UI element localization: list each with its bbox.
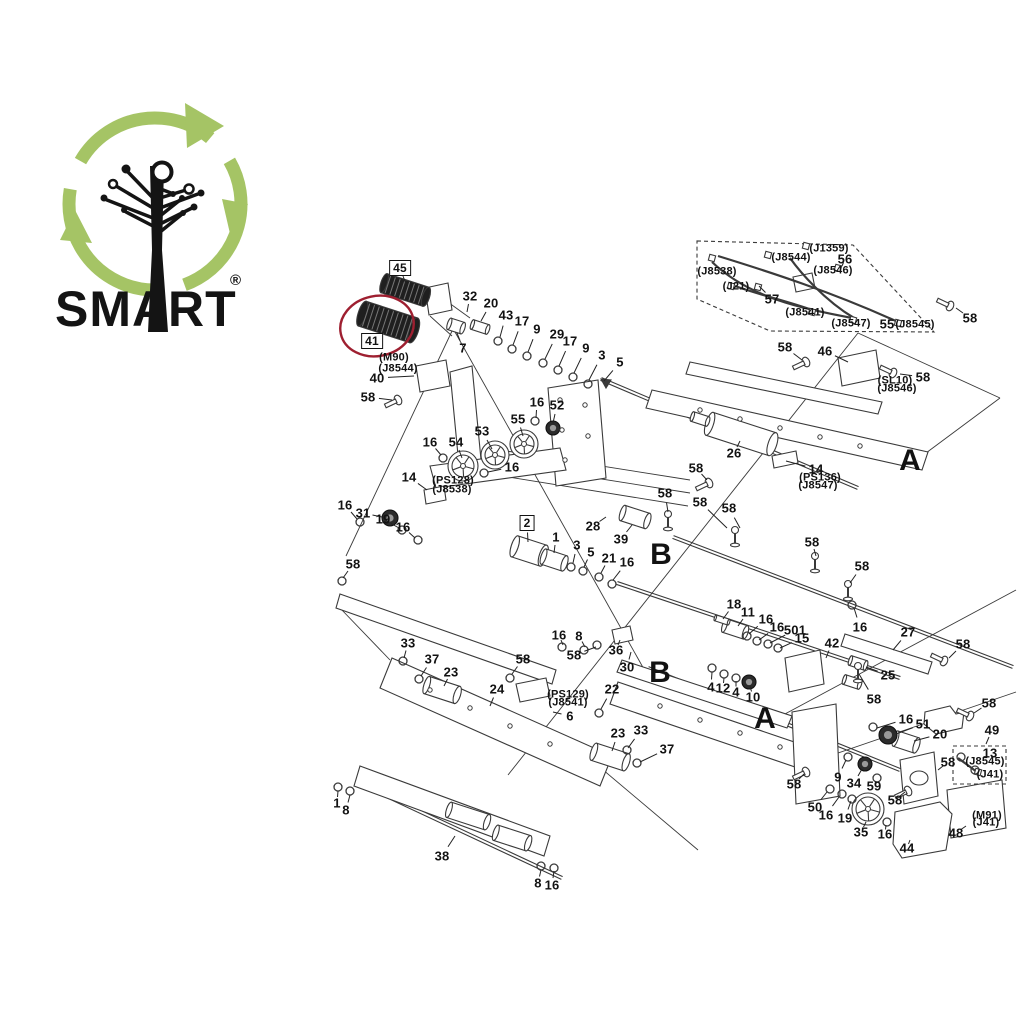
exploded-parts-drawing: [334, 241, 1016, 879]
diagram-artwork: SMA RT ®: [0, 0, 1024, 1024]
screenshot-root: SMA RT ® 4541: [0, 0, 1024, 1024]
logo-wordmark-right: RT: [168, 281, 237, 337]
logo-registered-mark: ®: [230, 272, 241, 289]
leader-lines: [338, 263, 990, 879]
smart-logo: SMA RT ®: [38, 87, 273, 337]
